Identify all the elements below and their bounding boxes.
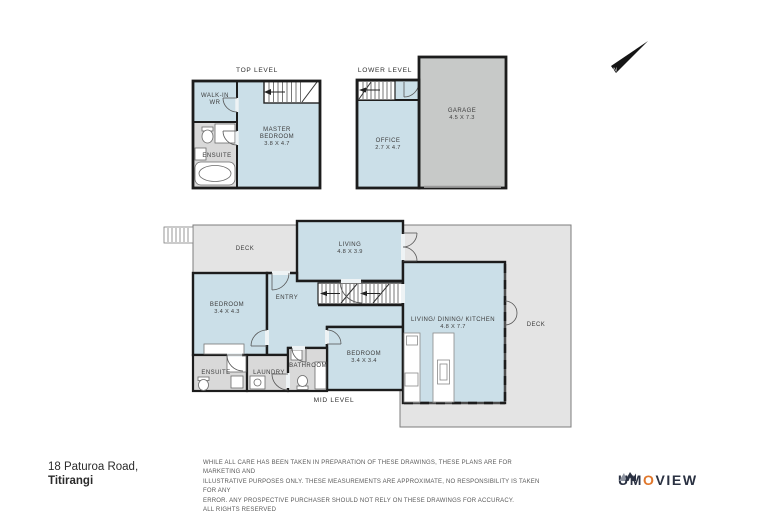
floor-plan-page: TOP LEVEL — [0, 0, 768, 512]
ensuite-top-label: ENSUITE — [202, 153, 231, 159]
vanity-icon — [231, 376, 243, 388]
disclaimer-text: WHILE ALL CARE HAS BEEN TAKEN IN PREPARA… — [203, 459, 543, 512]
stairs-lower-level — [358, 81, 395, 100]
kitchen-appliance-icon — [405, 373, 418, 386]
master-bedroom-label-2: BEDROOM — [260, 134, 294, 140]
disclaimer-line-1: WHILE ALL CARE HAS BEEN TAKEN IN PREPARA… — [203, 459, 543, 478]
kitchen-sink-icon — [407, 336, 418, 345]
disclaimer-line-2: ILLUSTRATIVE PURPOSES ONLY. THESE MEASUR… — [203, 478, 543, 497]
lower-level-title: LOWER LEVEL — [358, 67, 412, 74]
ldk-dims: 4.8 X 7.7 — [440, 324, 465, 330]
deck-right-label: DECK — [527, 322, 545, 328]
address-line-1: 18 Paturoa Road, — [48, 461, 138, 475]
stairs-top-level — [264, 81, 320, 103]
office-label: OFFICE — [376, 138, 401, 144]
office-dims: 2.7 X 4.7 — [375, 145, 400, 151]
logo-mark-icon — [618, 468, 638, 482]
bedroom-1-dims: 3.4 X 4.3 — [214, 309, 239, 315]
mid-level-plan: DECK LIVING 4.8 X 3.9 BEDROOM 3.4 X 4.3 … — [164, 221, 571, 427]
lower-level-plan: LOWER LEVEL OFFICE 2.7 X 4.7 GARAGE 4.5 … — [357, 57, 506, 188]
bedroom-2-dims: 3.4 X 3.4 — [351, 358, 376, 364]
walk-in-wr-label-2: WR — [210, 100, 221, 106]
toilet-icon — [202, 127, 213, 143]
top-level-plan: TOP LEVEL — [193, 67, 320, 188]
logo-accent-letter: O — [643, 472, 656, 488]
entry-label: ENTRY — [276, 295, 298, 301]
top-level-title: TOP LEVEL — [236, 67, 278, 74]
exterior-stairs — [164, 227, 193, 243]
toilet-icon — [198, 377, 209, 391]
garage-label: GARAGE — [448, 108, 476, 114]
logo-part-2: VIEW — [655, 472, 697, 488]
bathtub-icon — [195, 162, 235, 185]
toilet-icon — [297, 376, 308, 390]
compass-north-label: N — [613, 68, 617, 74]
bedroom-2-label: BEDROOM — [347, 351, 381, 357]
washer-icon — [250, 376, 265, 389]
ldk-label: LIVING/ DINING/ KITCHEN — [411, 317, 495, 323]
living-label: LIVING — [339, 242, 361, 248]
umoview-logo: UMOVIEW — [618, 468, 738, 492]
living-dims: 4.8 X 3.9 — [337, 249, 362, 255]
room-garage — [419, 57, 506, 188]
walk-in-wr-label: WALK-IN — [201, 93, 229, 99]
compass: N — [611, 41, 648, 74]
wardrobe — [204, 344, 244, 354]
shower-icon — [215, 124, 235, 143]
stairwell-mid-level — [318, 283, 402, 304]
bathroom-label: BATHROOM — [289, 363, 327, 369]
master-bedroom-dims: 3.8 X 4.7 — [264, 141, 289, 147]
ensuite-mid-label: ENSUITE — [201, 370, 230, 376]
address-line-2: Titirangi — [48, 475, 138, 489]
mid-level-title: MID LEVEL — [314, 397, 355, 404]
garage-dims: 4.5 X 7.3 — [449, 115, 474, 121]
disclaimer-line-3: ERROR. ANY PROSPECTIVE PURCHASER SHOULD … — [203, 497, 543, 506]
master-bedroom-label: MASTER — [263, 127, 291, 133]
cooktop-inner — [440, 364, 447, 380]
floor-plan-drawing: TOP LEVEL — [0, 0, 768, 512]
property-address: 18 Paturoa Road, Titirangi — [48, 461, 138, 488]
deck-left-label: DECK — [236, 246, 254, 252]
laundry-label: LAUNDRY — [253, 370, 285, 376]
bedroom-1-label: BEDROOM — [210, 302, 244, 308]
disclaimer-line-4: ALL RIGHTS RESERVED — [203, 506, 543, 512]
